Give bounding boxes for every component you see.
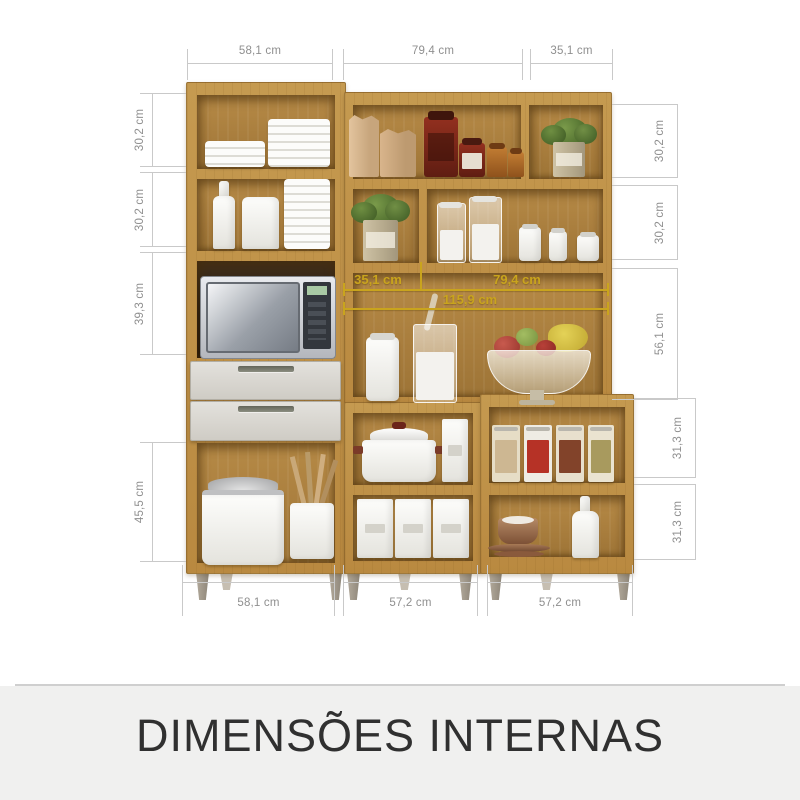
dim-left-4: 45,5 cm xyxy=(140,442,186,562)
dim-right-1: 30,2 cm xyxy=(612,104,678,178)
dim-label: 79,4 cm xyxy=(343,45,523,57)
microwave-display xyxy=(307,286,327,295)
honey-jar xyxy=(487,147,507,177)
dim-right-3: 56,1 cm xyxy=(612,268,678,400)
wooden-utensils xyxy=(292,452,336,506)
dim-label: 31,3 cm xyxy=(672,417,684,459)
paper-bag xyxy=(380,129,416,177)
drawer-bottom xyxy=(190,401,341,441)
internal-dim-tick xyxy=(607,283,609,296)
dim-top-3: 35,1 cm xyxy=(530,46,613,80)
divider xyxy=(15,684,785,686)
preserve-jar-large xyxy=(424,117,458,177)
casserole-pot xyxy=(362,440,436,482)
internal-dim-line xyxy=(343,289,609,291)
kitchen-canister xyxy=(433,499,469,558)
internal-dim-line xyxy=(343,308,609,310)
dim-left-1: 30,2 cm xyxy=(140,93,186,167)
dim-line xyxy=(152,252,153,355)
dim-label: 31,3 cm xyxy=(672,501,684,543)
dim-line xyxy=(152,442,153,562)
dim-label: 39,3 cm xyxy=(134,282,146,324)
utensil-holder xyxy=(290,503,334,559)
dim-bottom-1: 58,1 cm xyxy=(182,565,335,616)
microwave-door xyxy=(206,282,300,353)
dim-line xyxy=(677,104,678,178)
ceramic-canister xyxy=(242,197,279,249)
stock-pot xyxy=(202,490,284,565)
paper-bag xyxy=(349,115,379,177)
food-package xyxy=(492,425,520,482)
kitchen-canister xyxy=(395,499,431,558)
microwave-panel xyxy=(303,282,331,349)
dim-line xyxy=(187,63,333,64)
dimension-diagram: 58,1 cm 79,4 cm 35,1 cm 58,1 cm 57,2 cm … xyxy=(0,0,800,800)
dim-bottom-2: 57,2 cm xyxy=(343,565,478,616)
cup-stack xyxy=(488,518,550,558)
internal-dim-total: 115,9 cm xyxy=(380,292,560,307)
food-package xyxy=(588,425,614,482)
plant-tin-pot xyxy=(363,220,398,261)
plant-tin-pot xyxy=(553,142,585,177)
spice-jar xyxy=(549,231,567,261)
internal-dim-left: 35,1 cm xyxy=(345,272,411,287)
dim-bottom-3: 57,2 cm xyxy=(487,565,633,616)
dim-left-2: 30,2 cm xyxy=(140,172,186,247)
milk-bottle xyxy=(572,511,599,558)
dim-left-3: 39,3 cm xyxy=(140,252,186,355)
dim-right-4: 31,3 cm xyxy=(634,398,696,478)
fruit-bowl-base xyxy=(519,400,555,405)
footer-band: DIMENSÕES INTERNAS xyxy=(0,686,800,800)
internal-dim-tick xyxy=(607,302,609,315)
dim-label: 30,2 cm xyxy=(134,109,146,151)
sugar-jar xyxy=(413,324,457,403)
dim-line xyxy=(487,582,633,583)
dim-label: 30,2 cm xyxy=(654,120,666,162)
plates-stack xyxy=(205,141,265,167)
food-package xyxy=(524,425,552,482)
dim-right-5: 31,3 cm xyxy=(634,484,696,560)
drawer-handle-icon xyxy=(238,366,294,372)
plates-stack xyxy=(268,119,330,167)
dim-top-2: 79,4 cm xyxy=(343,46,523,80)
dim-line xyxy=(677,268,678,400)
dim-right-2: 30,2 cm xyxy=(612,185,678,260)
dim-label: 35,1 cm xyxy=(530,45,613,57)
glass-canister xyxy=(437,203,466,263)
dim-line xyxy=(152,172,153,247)
internal-dim-tick xyxy=(343,302,345,315)
dim-line xyxy=(695,484,696,560)
dim-top-1: 58,1 cm xyxy=(187,46,333,80)
flour-jar xyxy=(366,337,399,401)
spice-jar xyxy=(519,227,541,261)
spice-jar xyxy=(577,235,599,261)
food-box xyxy=(442,419,468,482)
dim-label: 57,2 cm xyxy=(343,597,478,609)
drawer-top xyxy=(190,361,341,400)
page-title: DIMENSÕES INTERNAS xyxy=(0,710,800,762)
bowl-stack xyxy=(284,179,330,249)
dim-label: 56,1 cm xyxy=(654,313,666,355)
dim-label: 45,5 cm xyxy=(134,481,146,523)
dim-line xyxy=(182,582,335,583)
food-package xyxy=(556,425,584,482)
kitchen-canister xyxy=(357,499,393,558)
dim-line xyxy=(530,63,613,64)
dim-line xyxy=(152,93,153,167)
dim-label: 30,2 cm xyxy=(654,201,666,243)
dim-label: 58,1 cm xyxy=(182,597,335,609)
dim-line xyxy=(343,582,478,583)
microwave xyxy=(200,276,336,359)
internal-dim-tick xyxy=(343,283,345,296)
dim-line xyxy=(677,185,678,260)
dim-label: 58,1 cm xyxy=(187,45,333,57)
honey-jar xyxy=(508,152,524,177)
internal-dim-tick xyxy=(420,262,422,291)
internal-dim-right: 79,4 cm xyxy=(426,272,608,287)
dim-label: 57,2 cm xyxy=(487,597,633,609)
dim-line xyxy=(343,63,523,64)
dim-line xyxy=(695,398,696,478)
dim-label: 30,2 cm xyxy=(134,188,146,230)
microwave-buttons xyxy=(308,302,326,340)
ceramic-bottle xyxy=(213,196,235,249)
drawer-handle-icon xyxy=(238,406,294,412)
preserve-jar-small xyxy=(459,143,485,177)
glass-canister xyxy=(469,197,502,263)
